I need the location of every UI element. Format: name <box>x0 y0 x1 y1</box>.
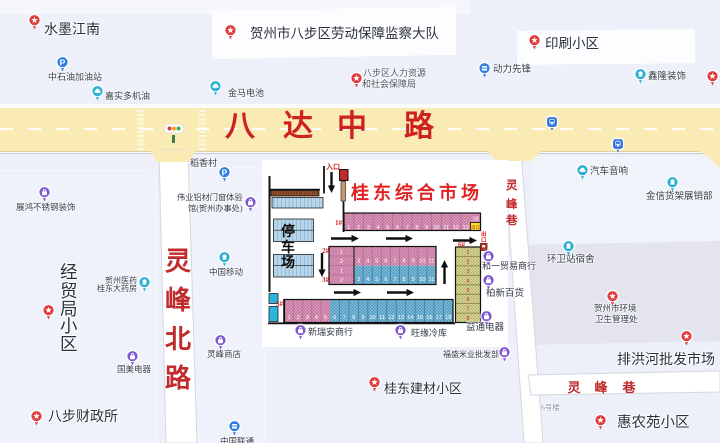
svg-text:16: 16 <box>426 315 432 321</box>
svg-text:11: 11 <box>379 315 385 321</box>
svg-text:8: 8 <box>403 259 406 265</box>
svg-text:2: 2 <box>297 315 300 321</box>
svg-text:8: 8 <box>352 315 355 321</box>
svg-text:3: 3 <box>306 315 309 321</box>
svg-text:2: 2 <box>467 259 470 265</box>
svg-text:11: 11 <box>429 277 435 283</box>
svg-text:17: 17 <box>436 315 442 321</box>
svg-text:1: 1 <box>340 269 343 275</box>
svg-text:1: 1 <box>467 250 470 256</box>
svg-text:9: 9 <box>412 277 415 283</box>
svg-text:8: 8 <box>467 316 470 322</box>
svg-text:6: 6 <box>384 259 387 265</box>
svg-text:出口: 出口 <box>471 224 479 231</box>
svg-text:9: 9 <box>362 315 365 321</box>
svg-text:15: 15 <box>417 315 423 321</box>
svg-text:1: 1 <box>340 250 343 256</box>
svg-text:11: 11 <box>429 259 435 265</box>
svg-text:4: 4 <box>366 259 369 265</box>
svg-text:13: 13 <box>398 315 404 321</box>
svg-text:P: P <box>60 57 66 67</box>
svg-text:7: 7 <box>393 259 396 265</box>
svg-text:1: 1 <box>287 315 290 321</box>
svg-text:7: 7 <box>343 315 346 321</box>
svg-text:16: 16 <box>472 217 478 223</box>
svg-text:5: 5 <box>375 277 378 283</box>
svg-text:7: 7 <box>467 307 470 313</box>
svg-text:4: 4 <box>315 315 318 321</box>
svg-text:6: 6 <box>384 277 387 283</box>
svg-text:5: 5 <box>375 259 378 265</box>
svg-text:12: 12 <box>388 315 394 321</box>
svg-text:5: 5 <box>324 315 327 321</box>
svg-text:2: 2 <box>340 259 343 265</box>
svg-text:9: 9 <box>412 259 415 265</box>
svg-text:3: 3 <box>357 259 360 265</box>
svg-text:14: 14 <box>407 315 413 321</box>
svg-text:18: 18 <box>445 315 451 321</box>
svg-text:6: 6 <box>333 315 336 321</box>
svg-text:7: 7 <box>393 277 396 283</box>
svg-text:10: 10 <box>419 259 425 265</box>
svg-text:10: 10 <box>369 315 375 321</box>
svg-text:5: 5 <box>467 288 470 294</box>
svg-text:10: 10 <box>419 277 425 283</box>
svg-text:8: 8 <box>403 277 406 283</box>
svg-text:3: 3 <box>357 277 360 283</box>
svg-text:3: 3 <box>467 269 470 275</box>
svg-text:4: 4 <box>366 277 369 283</box>
svg-text:2: 2 <box>340 278 343 284</box>
svg-text:4: 4 <box>467 278 470 284</box>
svg-text:P: P <box>222 167 228 177</box>
svg-text:6: 6 <box>467 297 470 303</box>
